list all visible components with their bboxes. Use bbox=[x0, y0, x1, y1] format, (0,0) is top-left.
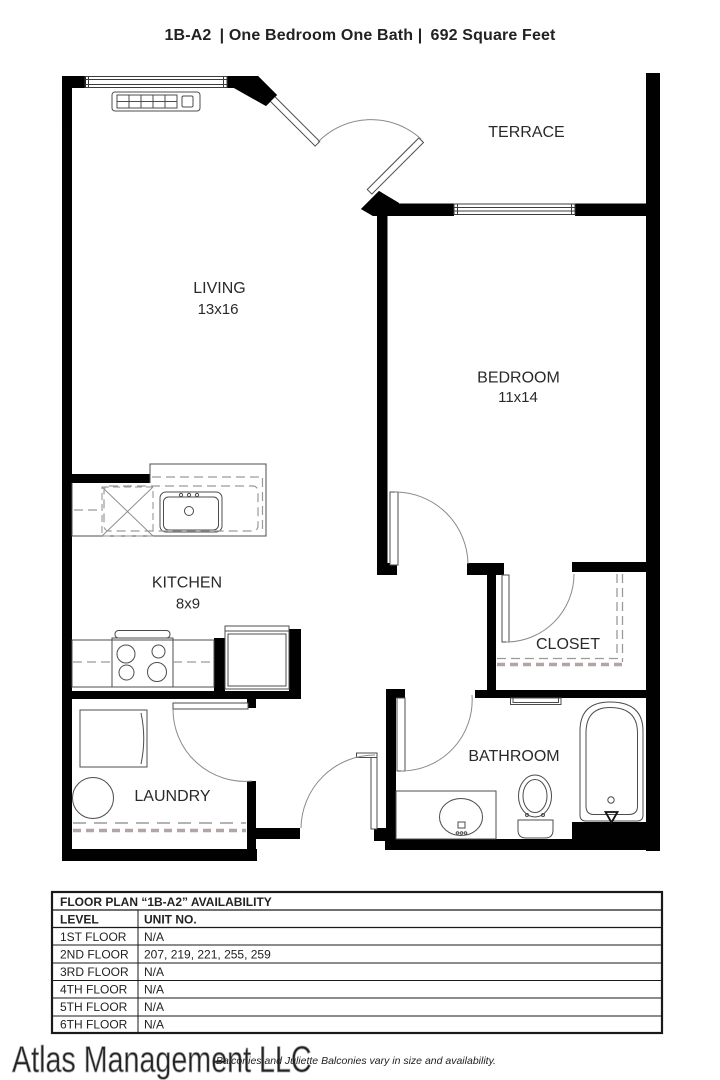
svg-text:8x9: 8x9 bbox=[176, 596, 200, 613]
svg-text:KITCHEN: KITCHEN bbox=[152, 575, 222, 592]
svg-text:1ST FLOOR: 1ST FLOOR bbox=[60, 930, 127, 944]
svg-text:FLOOR PLAN “1B-A2” AVAILABILIT: FLOOR PLAN “1B-A2” AVAILABILITY bbox=[60, 895, 272, 909]
svg-text:1B-A2 | One Bedroom One Bath |: 1B-A2 | One Bedroom One Bath | 692 Squar… bbox=[164, 27, 556, 44]
svg-text:BATHROOM: BATHROOM bbox=[468, 748, 559, 765]
svg-text:N/A: N/A bbox=[144, 965, 164, 979]
svg-text:CLOSET: CLOSET bbox=[536, 636, 600, 653]
svg-text:6TH FLOOR: 6TH FLOOR bbox=[60, 1018, 128, 1032]
svg-text:207, 219, 221, 255, 259: 207, 219, 221, 255, 259 bbox=[144, 948, 271, 962]
svg-text:Balconies and Juliette Balconi: Balconies and Juliette Balconies vary in… bbox=[216, 1055, 496, 1067]
svg-text:11x14: 11x14 bbox=[498, 389, 538, 406]
svg-text:BEDROOM: BEDROOM bbox=[477, 370, 560, 387]
svg-text:5TH FLOOR: 5TH FLOOR bbox=[60, 1000, 128, 1014]
svg-text:2ND FLOOR: 2ND FLOOR bbox=[60, 948, 129, 962]
svg-text:4TH FLOOR: 4TH FLOOR bbox=[60, 983, 128, 997]
svg-text:LAUNDRY: LAUNDRY bbox=[134, 788, 211, 805]
svg-text:N/A: N/A bbox=[144, 983, 164, 997]
svg-text:3RD FLOOR: 3RD FLOOR bbox=[60, 965, 129, 979]
svg-text:LEVEL: LEVEL bbox=[60, 913, 99, 927]
svg-text:13x16: 13x16 bbox=[198, 301, 239, 318]
svg-text:N/A: N/A bbox=[144, 930, 164, 944]
svg-text:N/A: N/A bbox=[144, 1018, 164, 1032]
svg-text:N/A: N/A bbox=[144, 1000, 164, 1014]
svg-text:TERRACE: TERRACE bbox=[488, 124, 564, 141]
svg-text:LIVING: LIVING bbox=[193, 280, 245, 297]
svg-text:UNIT NO.: UNIT NO. bbox=[144, 913, 197, 927]
